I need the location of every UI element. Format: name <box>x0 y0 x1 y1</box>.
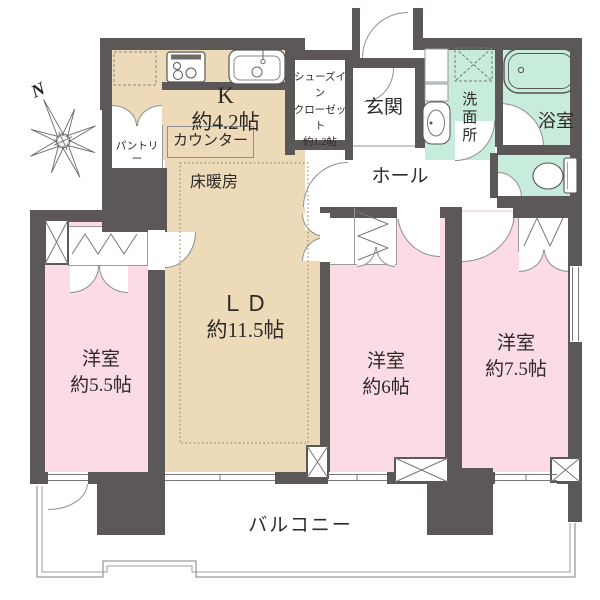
room-living-dining-floor <box>165 230 330 478</box>
wall <box>352 8 360 58</box>
wall <box>100 38 305 50</box>
window <box>495 472 557 484</box>
entrance-label: 玄関 <box>352 96 416 119</box>
hall-label: ホール <box>355 165 445 188</box>
floor-heating-label: 床暖房 <box>168 173 260 193</box>
balcony-label: バルコニー <box>228 514 373 537</box>
closet-bedroom55 <box>68 226 148 266</box>
wall <box>353 58 423 68</box>
kitchen-name: K <box>217 83 234 108</box>
wall <box>320 262 330 478</box>
living-dining-label: ＬＤ 約11.5帖 <box>178 291 313 343</box>
pillar <box>427 468 493 535</box>
compass-north-label: N <box>27 78 49 102</box>
window <box>165 472 275 484</box>
balcony-door-gap <box>48 472 88 484</box>
balcony-door-arc <box>48 483 88 510</box>
washroom-label: 洗面所 <box>459 76 477 160</box>
window <box>328 472 387 484</box>
wall <box>568 478 582 522</box>
wall <box>490 153 498 198</box>
floor-plan: N K 約4.2帖 カウンター 床暖房 パントリー シューズイン クローゼット … <box>0 0 600 600</box>
doorway-gap <box>148 230 165 270</box>
wall <box>513 207 582 218</box>
bathroom-label: 浴室 <box>524 111 588 133</box>
pillar <box>97 473 165 535</box>
wall <box>497 145 582 155</box>
wall <box>495 47 503 147</box>
pantry-label: パントリー <box>111 141 163 167</box>
ld-name: ＬＤ <box>221 291 269 316</box>
doorway-gap <box>320 213 330 262</box>
shoes-in-closet-label: シューズイン クローゼット 約1.2帖 <box>290 70 350 151</box>
wall <box>30 210 165 222</box>
counter-label: カウンター <box>167 132 254 150</box>
wall <box>415 58 425 148</box>
bedroom75-label: 洋室 約7.5帖 <box>458 331 574 382</box>
entry-door-arc <box>362 12 408 58</box>
bedroom6-label: 洋室 約6帖 <box>330 349 442 400</box>
compass-icon: N <box>2 65 112 192</box>
ld-size: 約11.5帖 <box>178 318 313 344</box>
hall-kitchen-door-arc <box>303 162 348 207</box>
bedroom55-label: 洋室 約5.5帖 <box>45 347 157 398</box>
doorway-gap <box>397 207 440 219</box>
wall <box>30 210 45 484</box>
kitchen-label: K 約4.2帖 <box>158 82 293 136</box>
